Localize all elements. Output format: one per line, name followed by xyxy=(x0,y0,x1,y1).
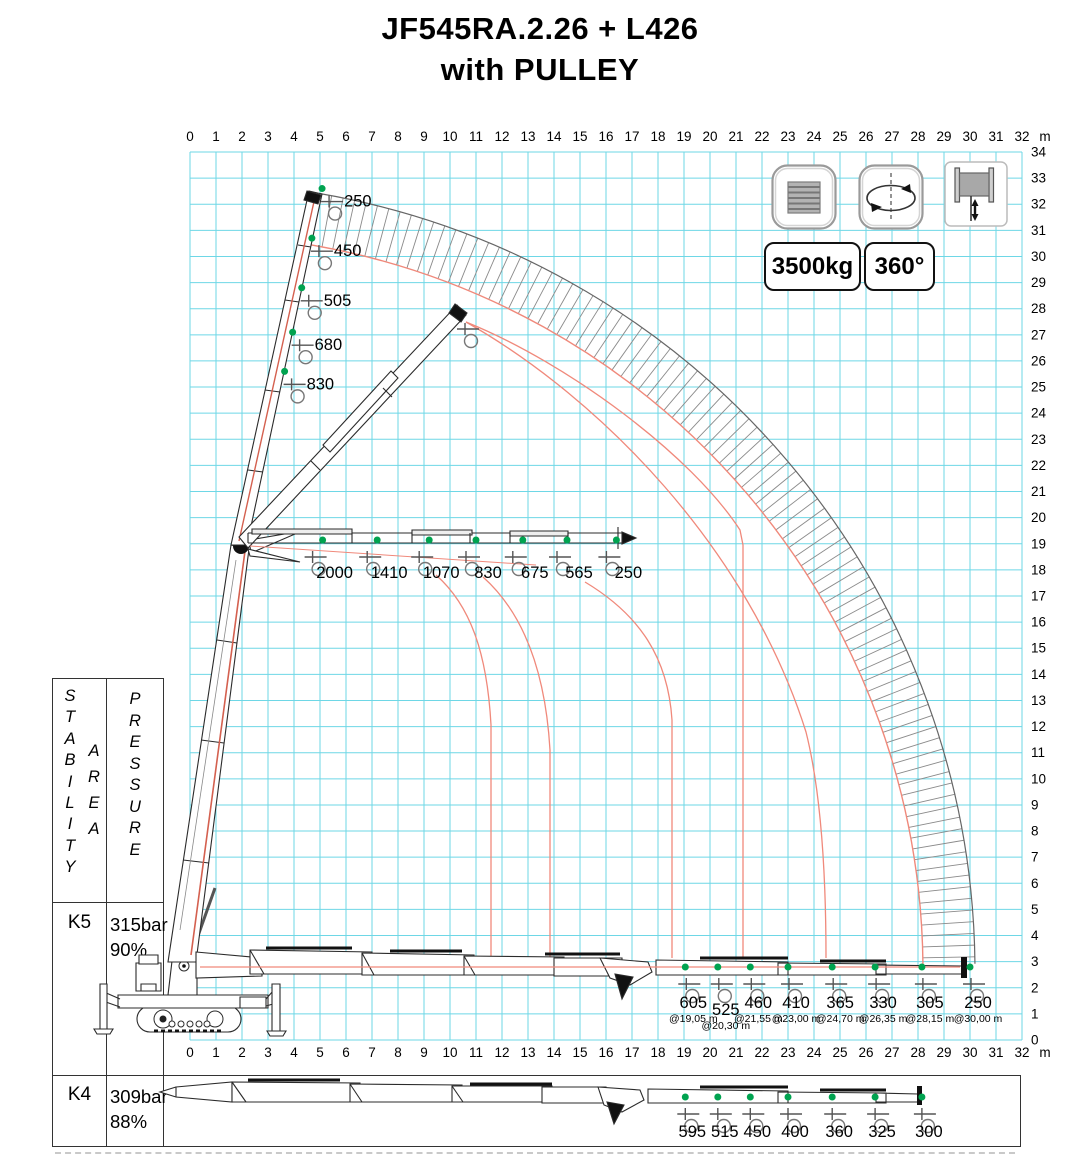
road-wheel xyxy=(196,1021,202,1027)
hatch-tick xyxy=(917,875,969,881)
vertical-jib-load-label: 830 xyxy=(307,375,335,393)
x-axis-bottom-tick: 7 xyxy=(368,1045,376,1060)
boom-low-s4 xyxy=(554,958,622,976)
load-point-dot xyxy=(319,185,326,192)
hatch-tick xyxy=(585,308,613,352)
boom-pivot-pin xyxy=(182,964,186,968)
k4-boom-box xyxy=(163,1075,1021,1147)
hatch-tick xyxy=(902,783,952,795)
load-point-dot xyxy=(682,964,689,971)
envelope-inner-boundary xyxy=(311,245,923,965)
stability-label: S T A B I L I T Y xyxy=(59,686,81,879)
vertical-jib-load-label: 505 xyxy=(324,292,352,310)
jib-diagonal xyxy=(239,305,466,548)
hatch-tick xyxy=(734,444,773,479)
x-axis-top-tick: 2 xyxy=(238,129,246,144)
x-axis-top-tick: 29 xyxy=(936,129,951,144)
x-axis-bottom-tick: 16 xyxy=(598,1045,613,1060)
hatch-tick xyxy=(782,508,824,539)
road-wheel xyxy=(204,1021,210,1027)
outrigger-leg-right xyxy=(272,984,280,1031)
x-axis-bottom-tick: 8 xyxy=(394,1045,402,1060)
title-line2: with PULLEY xyxy=(0,49,1080,90)
hatch-tick xyxy=(923,957,975,958)
y-axis-tick: 19 xyxy=(1031,536,1046,551)
x-axis-bottom-tick: 0 xyxy=(186,1045,194,1060)
hatch-tick xyxy=(904,794,955,806)
x-axis-bottom-tick: 21 xyxy=(728,1045,743,1060)
jib-vertical xyxy=(231,191,322,545)
boom-low-overlaps xyxy=(266,948,620,954)
crane-load-chart-page: JF545RA.2.26 + L426 with PULLEY S T A B … xyxy=(0,0,1080,1163)
x-axis-top-tick: 17 xyxy=(624,129,639,144)
y-axis-tick: 2 xyxy=(1031,980,1039,995)
hatch-tick xyxy=(923,945,975,947)
hook-icon-eye xyxy=(751,990,764,1003)
rotation-360-icon xyxy=(858,164,924,235)
envelope-outer-boundary xyxy=(319,194,974,964)
hatch-tick xyxy=(824,577,869,603)
ground-load-label-k5: 250 xyxy=(964,994,992,1012)
k5-pressure-value: 315bar 90% xyxy=(110,912,168,962)
hook-icon-eye xyxy=(466,563,479,576)
y-axis-tick: 30 xyxy=(1031,249,1046,264)
x-axis-top-tick: 9 xyxy=(420,129,428,144)
x-axis-top-tick: 4 xyxy=(290,129,298,144)
hatch-tick xyxy=(612,328,642,370)
y-axis-tick: 21 xyxy=(1031,484,1046,499)
hatch-tick xyxy=(890,738,940,753)
hook-icon xyxy=(711,978,733,990)
ground-load-radius-label: @19,05 m xyxy=(669,1013,718,1025)
horizontal-jib-load-label: 2000 xyxy=(316,564,353,582)
hatch-tick xyxy=(916,863,968,870)
y-axis-tick: 3 xyxy=(1031,954,1039,969)
jib-horizontal-red-line xyxy=(250,546,536,565)
hatch-tick xyxy=(664,371,698,411)
boom-pivot xyxy=(179,961,189,971)
x-axis-bottom-tick: 9 xyxy=(420,1045,428,1060)
hatch-tick xyxy=(859,650,906,671)
x-axis-top-tick: 23 xyxy=(780,129,795,144)
load-point-dot xyxy=(785,964,792,971)
knuckle-link-b xyxy=(248,549,300,562)
ground-load-radius-label: @24,70 m xyxy=(816,1013,865,1025)
hatch-tick xyxy=(518,267,541,313)
x-axis-bottom-tick: 3 xyxy=(264,1045,272,1060)
main-boom-joints xyxy=(183,640,237,863)
hook-icon xyxy=(305,551,327,563)
hatch-tick xyxy=(896,760,946,774)
load-point-dot xyxy=(319,537,326,544)
hatch-tick xyxy=(688,394,723,432)
hook-icon xyxy=(301,295,323,307)
ground-load-radius-label: @28,15 m xyxy=(906,1013,955,1025)
hatch-tick xyxy=(630,341,661,383)
x-axis-bottom-tick: 13 xyxy=(520,1045,535,1060)
outrigger-beam-right xyxy=(266,991,273,1006)
x-axis-bottom-tick: 12 xyxy=(494,1045,509,1060)
load-point-labels: 2504505056808302000141010708306755652506… xyxy=(281,185,1002,1141)
x-axis-top-tick: 0 xyxy=(186,129,194,144)
x-axis-bottom-tick: 4 xyxy=(290,1045,298,1060)
horizontal-jib-load-label: 565 xyxy=(565,564,593,582)
hatch-tick xyxy=(547,284,573,329)
ground-load-radius-label: @26,35 m xyxy=(859,1013,908,1025)
boom-low-root xyxy=(196,952,262,978)
y-axis-tick: 16 xyxy=(1031,615,1046,630)
ground-load-label-k5: 605 xyxy=(680,994,708,1012)
horizontal-jib-load-label: 1070 xyxy=(423,564,460,582)
load-point-dot xyxy=(747,964,754,971)
x-axis-top-tick: 11 xyxy=(469,129,483,144)
load-point-dot xyxy=(967,964,974,971)
hatch-tick xyxy=(920,898,972,903)
x-axis-top-tick: 18 xyxy=(650,129,665,144)
load-point-dot xyxy=(519,537,526,544)
hatch-tick xyxy=(621,335,652,377)
luffing-cylinder xyxy=(193,888,215,950)
hatch-tick xyxy=(396,215,411,265)
x-axis-top-tick: 6 xyxy=(342,129,350,144)
x-axis-bottom-tick: 11 xyxy=(469,1045,483,1060)
hatch-tick xyxy=(428,226,445,275)
hatch-tick xyxy=(876,693,925,711)
x-axis-top-tick: 1 xyxy=(212,129,220,144)
jib-horizontal-joints xyxy=(352,533,568,543)
y-axis-tick: 7 xyxy=(1031,850,1039,865)
k5-class-label: K5 xyxy=(52,912,107,934)
hatch-tick xyxy=(566,296,593,341)
hook-icon xyxy=(284,378,306,390)
y-axis-tick: 14 xyxy=(1031,667,1047,682)
x-axis-top-tick: 27 xyxy=(884,129,899,144)
road-wheel xyxy=(187,1021,193,1027)
vertical-jib-load-label: 450 xyxy=(334,242,362,260)
hatch-tick xyxy=(448,234,467,283)
y-axis-tick: 13 xyxy=(1031,693,1046,708)
x-axis-bottom-tick: 14 xyxy=(546,1045,562,1060)
y-axis-tick: 23 xyxy=(1031,432,1046,447)
hatch-tick xyxy=(311,194,320,245)
hook-icon-eye xyxy=(789,990,802,1003)
load-point-dot xyxy=(374,537,381,544)
hook-icon-eye xyxy=(686,990,699,1003)
tip-path-arc xyxy=(436,575,491,958)
jib-horizontal-tip-arrow xyxy=(622,532,636,544)
x-axis-bottom-tick: 23 xyxy=(780,1045,795,1060)
y-axis-tick: 12 xyxy=(1031,719,1046,734)
page-title: JF545RA.2.26 + L426 with PULLEY xyxy=(0,8,1080,90)
y-axis-tick: 11 xyxy=(1031,745,1045,760)
hook-icon-eye xyxy=(329,207,342,220)
y-axis-tick: 9 xyxy=(1031,797,1039,812)
hatch-tick xyxy=(386,212,400,262)
hatch-tick xyxy=(789,518,832,548)
hatch-tick xyxy=(919,887,971,893)
ground-load-radius-label: @30,00 m xyxy=(954,1013,1003,1025)
main-boom-raised xyxy=(168,545,249,962)
road-wheel xyxy=(169,1021,175,1027)
k4-class-label: K4 xyxy=(52,1084,107,1106)
hatch-tick xyxy=(365,206,378,256)
page-bottom-rule xyxy=(55,1152,1015,1154)
hatch-tick xyxy=(557,290,583,335)
tip-path-arc xyxy=(585,582,672,958)
y-axis-tick: 32 xyxy=(1031,197,1046,212)
x-axis-top-tick: 19 xyxy=(676,129,691,144)
x-axis-bottom-tick: 19 xyxy=(676,1045,691,1060)
x-axis-bottom-tick: 15 xyxy=(572,1045,587,1060)
load-point-dot xyxy=(564,537,571,544)
hook-icon xyxy=(359,551,381,563)
hook-icon-eye xyxy=(299,351,312,364)
y-axis-tick: 1 xyxy=(1031,1006,1039,1021)
hook-icon-eye xyxy=(922,990,935,1003)
y-axis-tick: 0 xyxy=(1031,1033,1039,1048)
hook-icon-eye xyxy=(419,563,432,576)
y-axis-tick: 6 xyxy=(1031,876,1039,891)
hatch-tick xyxy=(913,840,964,849)
x-axis-top-tick: 14 xyxy=(546,129,562,144)
hatch-tick xyxy=(704,410,741,447)
hatch-tick xyxy=(509,262,532,309)
x-axis-bottom-tick: 32 xyxy=(1014,1045,1029,1060)
hatch-tick xyxy=(840,608,886,632)
ground-load-label-k5: 460 xyxy=(745,994,773,1012)
hatch-tick xyxy=(655,363,688,403)
hatch-tick xyxy=(672,379,706,418)
hook-icon-eye xyxy=(833,990,846,1003)
x-axis-bottom-tick: 17 xyxy=(624,1045,639,1060)
hatch-tick xyxy=(680,386,715,425)
hook-icon-eye xyxy=(512,563,525,576)
x-axis-top-tick: 30 xyxy=(962,129,977,144)
x-axis-bottom-tick: 31 xyxy=(988,1045,1003,1060)
main-boom-red-stripe xyxy=(191,551,245,955)
y-axis-tick: 24 xyxy=(1031,406,1047,421)
hook-icon xyxy=(505,551,527,563)
x-axis-bottom-tick: 29 xyxy=(936,1045,951,1060)
turret xyxy=(168,959,197,995)
hatch-tick xyxy=(909,817,960,827)
load-point-dot xyxy=(829,964,836,971)
hatch-tick xyxy=(893,749,943,764)
hatch-tick xyxy=(333,198,343,249)
x-axis-top-tick: 16 xyxy=(598,129,613,144)
hatch-tick xyxy=(594,314,623,357)
hook-icon xyxy=(458,551,480,563)
hook-icon xyxy=(743,978,765,990)
hatch-tick xyxy=(911,829,962,838)
x-axis-top-tick: 5 xyxy=(316,129,324,144)
hatch-tick xyxy=(458,238,477,286)
x-axis-bottom-tick: 30 xyxy=(962,1045,977,1060)
hatch-tick xyxy=(528,273,552,319)
hook-icon-eye xyxy=(367,563,380,576)
hook-icon xyxy=(868,978,890,990)
hatch-tick xyxy=(835,597,881,622)
hatch-tick xyxy=(813,557,857,584)
hatch-tick xyxy=(756,471,796,504)
ground-load-label-k5: 525 xyxy=(712,1001,740,1019)
load-point-dot xyxy=(298,284,305,291)
hook-icon xyxy=(321,196,343,208)
hatch-tick xyxy=(749,462,789,496)
y-axis-tick: 10 xyxy=(1031,771,1046,786)
x-axis-bottom-tick: 6 xyxy=(342,1045,350,1060)
y-axis-tick: 22 xyxy=(1031,458,1046,473)
horizontal-jib-load-label: 1410 xyxy=(371,564,408,582)
hook-icon-eye xyxy=(308,306,321,319)
ground-load-label-k5: 330 xyxy=(869,994,897,1012)
x-axis-top-tick: 22 xyxy=(754,129,769,144)
x-axis-top-tick: 8 xyxy=(394,129,402,144)
y-axis-tick: 8 xyxy=(1031,824,1039,839)
crane-artwork xyxy=(94,191,967,1124)
hatch-tick xyxy=(899,772,949,785)
main-boom-inner-line xyxy=(180,560,236,930)
boom-low-articulation xyxy=(600,958,652,985)
hook-icon-eye xyxy=(606,563,619,576)
x-axis-top-tick: 25 xyxy=(832,129,847,144)
y-axis-tick: 4 xyxy=(1031,928,1039,943)
area-label: A R E A xyxy=(83,738,105,842)
hatch-tick xyxy=(854,639,901,661)
hook-icon xyxy=(598,551,620,563)
y-axis-tick: 28 xyxy=(1031,301,1046,316)
x-axis-bottom-tick: 25 xyxy=(832,1045,847,1060)
x-axis-top-tick: 13 xyxy=(520,129,535,144)
hook-icon xyxy=(781,978,803,990)
hatch-tick xyxy=(469,243,489,291)
hatch-tick xyxy=(819,567,864,594)
tip-path-arc xyxy=(466,322,826,958)
x-axis-bottom-tick: 22 xyxy=(754,1045,769,1060)
x-axis-bottom-tick: 27 xyxy=(884,1045,899,1060)
ground-load-radius-label: @20,30 m xyxy=(701,1020,750,1032)
jib-horizontal-overlaps xyxy=(252,529,568,536)
y-axis-tick: 25 xyxy=(1031,380,1046,395)
vertical-jib-load-label: 250 xyxy=(344,193,372,211)
x-axis-top-tick: 20 xyxy=(702,129,717,144)
x-axis-top-tick: 24 xyxy=(806,129,822,144)
y-axis-tick: 34 xyxy=(1031,144,1047,159)
hatch-tick xyxy=(879,704,928,722)
boom-low-jib-sections xyxy=(656,960,962,975)
hatch-tick xyxy=(719,427,757,463)
y-axis-tick: 29 xyxy=(1031,275,1046,290)
hatch-tick xyxy=(863,661,911,681)
knuckle-link-a xyxy=(249,531,302,553)
hatch-tick xyxy=(922,922,974,925)
hatch-tick xyxy=(922,933,974,936)
vertical-jib-load-label: 680 xyxy=(315,336,343,354)
stabilizer-pad-icon xyxy=(771,164,837,235)
hook-icon xyxy=(963,978,985,990)
hook-icon-eye xyxy=(557,563,570,576)
frame-box xyxy=(240,997,266,1008)
x-axis-bottom-tick: 1 xyxy=(212,1045,220,1060)
hook-icon xyxy=(915,978,937,990)
x-axis-top-tick: 15 xyxy=(572,129,587,144)
x-axis-top-tick: 12 xyxy=(494,129,509,144)
x-axis-top-tick: 31 xyxy=(988,129,1003,144)
ground-load-label-k5: 305 xyxy=(916,994,944,1012)
jib-vertical-tip-cap xyxy=(304,191,321,204)
x-axis-unit-bottom: m xyxy=(1039,1045,1050,1060)
hatch-tick xyxy=(883,715,932,732)
boom-low-jib-overlaps xyxy=(700,958,886,961)
max-capacity-badge: 3500kg xyxy=(764,242,861,291)
knuckle-joint xyxy=(233,538,249,554)
hatch-tick xyxy=(375,209,388,259)
x-axis-top-tick: 28 xyxy=(910,129,925,144)
title-line1: JF545RA.2.26 + L426 xyxy=(0,8,1080,49)
horizontal-jib-load-label: 830 xyxy=(474,564,502,582)
hook-icon xyxy=(411,551,433,563)
hook-icon-eye xyxy=(465,335,478,348)
x-axis-top-tick: 10 xyxy=(442,129,457,144)
y-axis-tick: 15 xyxy=(1031,641,1046,656)
k4-pressure-value: 309bar 88% xyxy=(110,1084,168,1134)
hatch-tick xyxy=(638,349,670,390)
slew-angle-value: 360° xyxy=(875,253,925,281)
hatch-tick xyxy=(776,499,818,530)
jib-horizontal xyxy=(248,533,622,543)
hatch-tick xyxy=(407,219,423,269)
load-point-dot xyxy=(308,235,315,242)
y-axis-tick: 20 xyxy=(1031,510,1046,525)
hatch-tick xyxy=(830,587,875,612)
hatch-tick xyxy=(499,257,521,304)
hatch-tick xyxy=(872,682,920,701)
x-axis-top-tick: 32 xyxy=(1014,129,1029,144)
pressure-label: P R E S S U R E xyxy=(124,689,146,861)
boom-low-tip-bar xyxy=(961,957,967,978)
x-axis-top-tick: 21 xyxy=(728,129,743,144)
hatch-tick xyxy=(795,527,838,556)
jib-diagonal-tip-cap xyxy=(449,304,467,322)
x-axis-bottom-tick: 24 xyxy=(806,1045,822,1060)
hook-icon xyxy=(311,245,333,257)
hook-icon xyxy=(457,323,479,335)
hook-icon-eye xyxy=(718,990,731,1003)
boom-low-s2 xyxy=(362,953,474,975)
hatch-tick xyxy=(489,252,510,299)
x-axis-bottom-tick: 28 xyxy=(910,1045,925,1060)
hatch-tick xyxy=(438,230,456,279)
load-point-dot xyxy=(426,537,433,544)
hook-icon-eye xyxy=(971,990,984,1003)
x-axis-bottom-tick: 5 xyxy=(316,1045,324,1060)
hatch-tick xyxy=(807,547,851,575)
hatch-tick xyxy=(354,203,366,254)
x-axis-top-tick: 7 xyxy=(368,129,376,144)
hatch-tick xyxy=(868,672,916,692)
ground-load-radius-label: @23,00 m xyxy=(772,1013,821,1025)
boom-low-s1 xyxy=(250,950,372,974)
boom-low-s3 xyxy=(464,956,564,975)
hatch-tick xyxy=(801,537,844,566)
hatch-tick xyxy=(712,419,749,455)
hatch-tick xyxy=(845,618,891,641)
hatch-tick xyxy=(647,356,680,397)
hatch-tick xyxy=(886,727,935,743)
max-capacity-value: 3500kg xyxy=(772,253,853,281)
hatch-tick xyxy=(479,247,500,295)
hook-icon xyxy=(549,551,571,563)
